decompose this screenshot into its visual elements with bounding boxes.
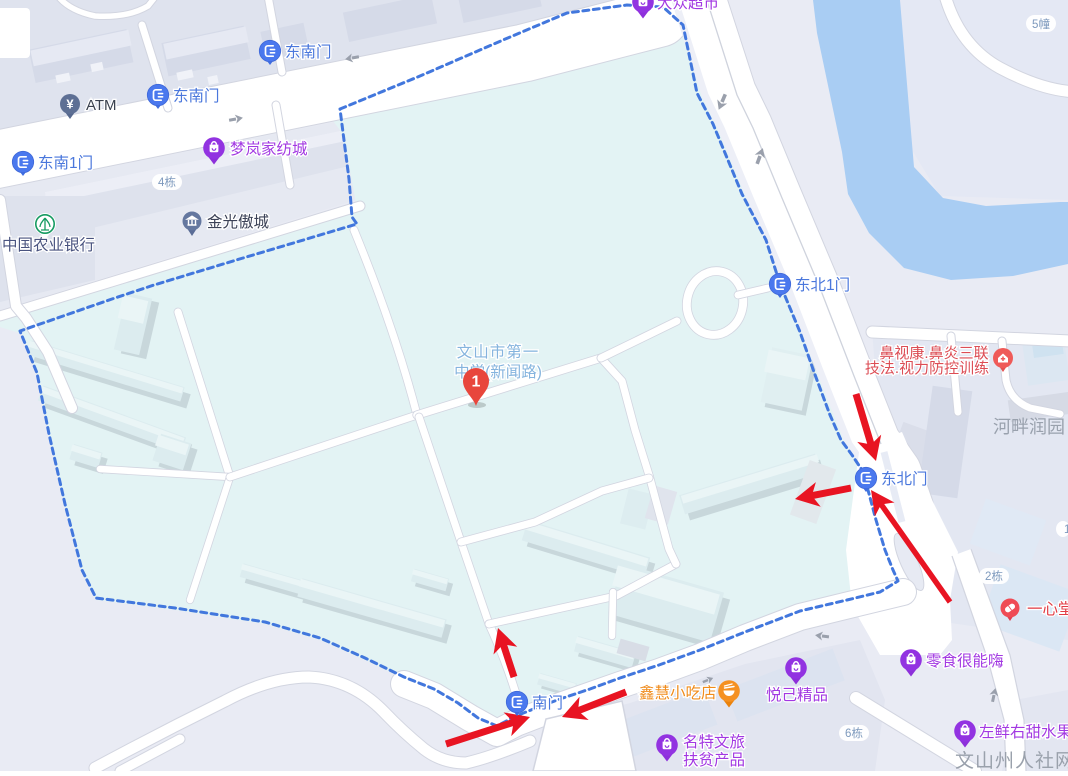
svg-text:5幢: 5幢 [1032, 17, 1050, 31]
svg-text:6栋: 6栋 [845, 726, 863, 740]
svg-text:东北门: 东北门 [881, 470, 928, 488]
svg-text:大众超市: 大众超市 [657, 0, 719, 12]
svg-text:技法.视力防控训练: 技法.视力防控训练 [865, 360, 989, 377]
svg-text:1: 1 [1064, 524, 1068, 536]
svg-text:零食很能嗨: 零食很能嗨 [926, 652, 1004, 670]
svg-text:扶贫产品: 扶贫产品 [683, 751, 745, 769]
svg-text:东北1门: 东北1门 [795, 276, 850, 294]
svg-text:名特文旅: 名特文旅 [683, 733, 745, 751]
svg-text:中国农业银行: 中国农业银行 [2, 236, 95, 254]
svg-text:文山市第一: 文山市第一 [457, 343, 540, 361]
svg-text:1: 1 [472, 374, 481, 391]
svg-text:ATM: ATM [86, 97, 117, 114]
svg-text:南门: 南门 [532, 694, 563, 712]
svg-text:悦己精品: 悦己精品 [766, 686, 828, 704]
svg-text:梦岚家纺城: 梦岚家纺城 [230, 140, 308, 158]
svg-text:4栋: 4栋 [158, 175, 176, 189]
svg-text:¥: ¥ [66, 97, 74, 112]
svg-text:金光傲城: 金光傲城 [207, 213, 270, 231]
svg-text:文山州人社网: 文山州人社网 [955, 750, 1068, 771]
svg-text:东南门: 东南门 [173, 87, 220, 105]
svg-text:2栋: 2栋 [985, 569, 1003, 583]
svg-text:一心堂: 一心堂 [1027, 600, 1068, 618]
svg-text:东南门: 东南门 [285, 43, 332, 61]
svg-text:左鲜右甜水果: 左鲜右甜水果 [979, 723, 1068, 741]
svg-text:东南1门: 东南1门 [38, 154, 93, 172]
svg-text:河畔润园: 河畔润园 [993, 417, 1065, 437]
svg-text:鑫慧小吃店: 鑫慧小吃店 [639, 684, 717, 702]
